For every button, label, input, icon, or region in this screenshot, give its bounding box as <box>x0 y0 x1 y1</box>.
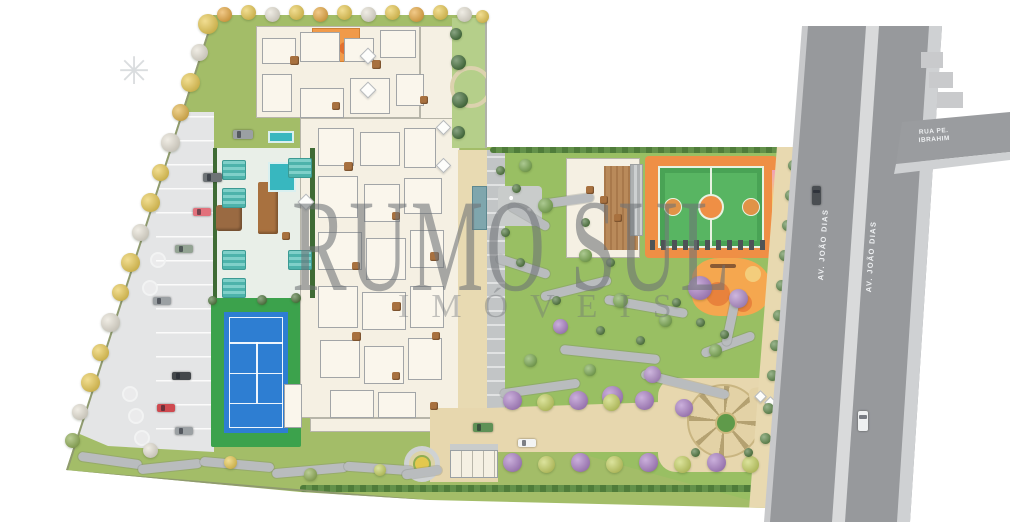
site-plan-illustration: ✳ <box>0 0 1024 522</box>
sidewalk-step-1 <box>921 52 943 68</box>
road-layer: AV. JOÃO DIAS AV. JOÃO DIAS RUA PE. IBRA… <box>0 0 1024 522</box>
car <box>858 411 868 431</box>
car <box>812 186 821 205</box>
sidewalk-step-3 <box>937 92 963 108</box>
car-windshield <box>859 415 867 419</box>
sidewalk-step-2 <box>929 72 953 88</box>
car-windshield <box>813 190 820 193</box>
